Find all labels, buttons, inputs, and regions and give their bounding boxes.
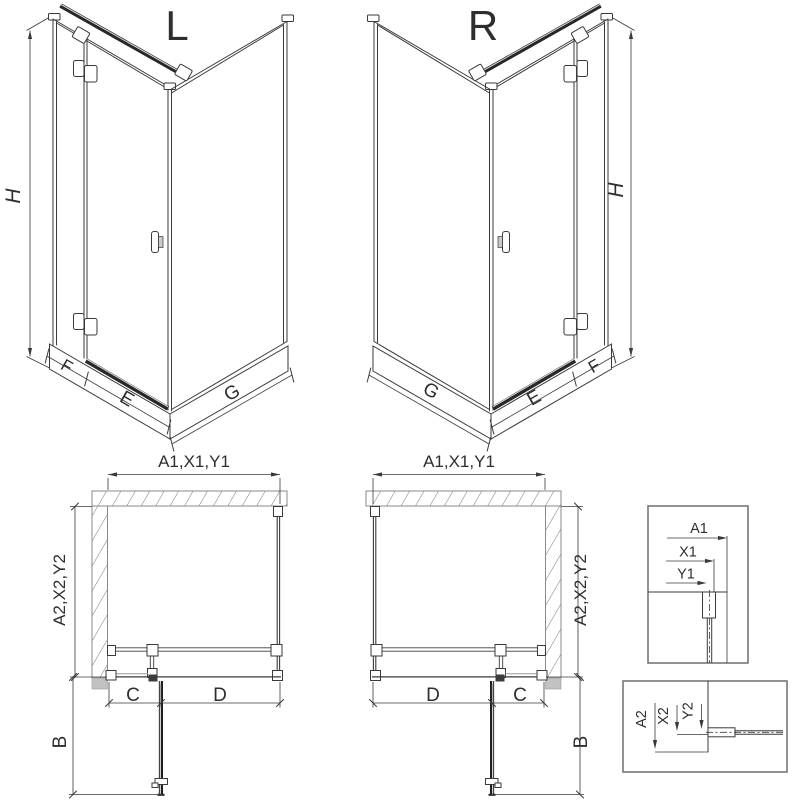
plan-left-walls: [92, 491, 287, 689]
wall-shadow: [546, 678, 562, 689]
detail-x1-label: X1: [679, 545, 697, 561]
door-segment-dim-label-left: D: [213, 685, 227, 706]
variant-label-left: L: [165, 2, 188, 49]
wall-profile-section: [703, 592, 716, 618]
iso-left-geometry: [27, 4, 294, 451]
wall-shadow: [92, 678, 108, 689]
detail-a2-label: A2: [634, 710, 650, 728]
plan-right-walls: [366, 491, 561, 689]
fixed-segment-dim-label-right: C: [513, 685, 527, 706]
width-dims-label-right: A1,X1,Y1: [423, 452, 495, 471]
detail-y1-label: Y1: [677, 567, 695, 583]
width-detail-view: A1 X1 Y1: [648, 506, 748, 663]
fixed-segment-dim-label-left: C: [126, 685, 140, 706]
shower-enclosure-technical-drawing: L R H F E G H F E G A1,X1,Y1 A2,X2,Y2 C …: [0, 0, 800, 800]
drawing-sheet: L R H F E G H F E G A1,X1,Y1 A2,X2,Y2 C …: [0, 0, 800, 800]
door-clearance-dim-label-right: B: [571, 736, 592, 749]
height-dim-label-right: H: [605, 182, 628, 198]
iso-right-geometry: [367, 4, 634, 451]
depth-dims-label-left: A2,X2,Y2: [50, 554, 69, 626]
height-dim-label-left: H: [2, 188, 25, 204]
width-dims-label-left: A1,X1,Y1: [158, 452, 230, 471]
door-segment-dim-label-right: D: [426, 685, 440, 706]
variant-label-right: R: [468, 2, 498, 49]
depth-dims-label-right: A2,X2,Y2: [571, 554, 590, 626]
detail-y2-label: Y2: [681, 702, 697, 720]
depth-detail-view: A2 X2 Y2: [623, 681, 787, 772]
door-clearance-dim-label-left: B: [50, 736, 71, 749]
detail-a1-label: A1: [690, 521, 708, 537]
detail-x2-label: X2: [656, 707, 672, 725]
